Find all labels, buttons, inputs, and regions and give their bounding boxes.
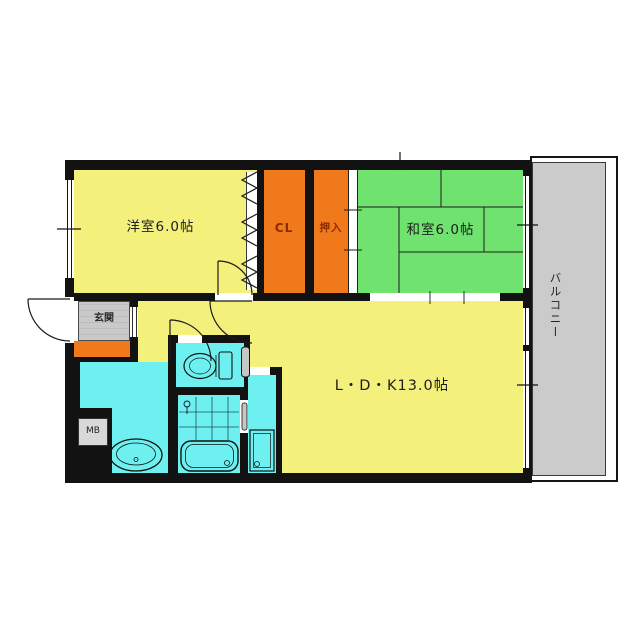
japanese-room-sliding-gap <box>370 293 500 301</box>
ldk-label: L・D・K13.0帖 <box>312 379 472 394</box>
japanese-room-label: 和室6.0帖 <box>368 224 513 238</box>
washer-space-wall-right <box>276 367 282 474</box>
bathroom-floor <box>178 395 240 473</box>
western-room-door-gap <box>215 293 253 301</box>
toilet-door-gap <box>178 335 202 343</box>
balcony-label: バルコニー <box>549 272 561 340</box>
washer-space-floor <box>248 375 276 473</box>
outer-wall-top <box>65 160 532 170</box>
closet-door-strip <box>246 172 257 290</box>
toilet-floor <box>176 343 244 387</box>
balcony-floor <box>532 162 606 476</box>
entrance-label: 玄関 <box>78 314 130 324</box>
bathroom-door-gap <box>240 400 248 433</box>
washer-space-door-gap <box>250 367 270 375</box>
oshiire-label: 押入 <box>310 223 352 234</box>
western-room-window-gap <box>65 180 74 278</box>
floor-plan: 洋室6.0帖 CL 押入 和室6.0帖 L・D・K13.0帖 バルコニー 玄関 … <box>0 0 640 640</box>
western-room-label: 洋室6.0帖 <box>88 221 233 235</box>
closet-label: CL <box>262 222 306 234</box>
outer-wall-bottom <box>65 473 532 483</box>
meter-box-label: MB <box>78 427 108 436</box>
entrance-wall-stub-top <box>130 301 138 307</box>
entrance-door-gap <box>65 297 74 343</box>
entrance-door-arc <box>28 299 70 341</box>
